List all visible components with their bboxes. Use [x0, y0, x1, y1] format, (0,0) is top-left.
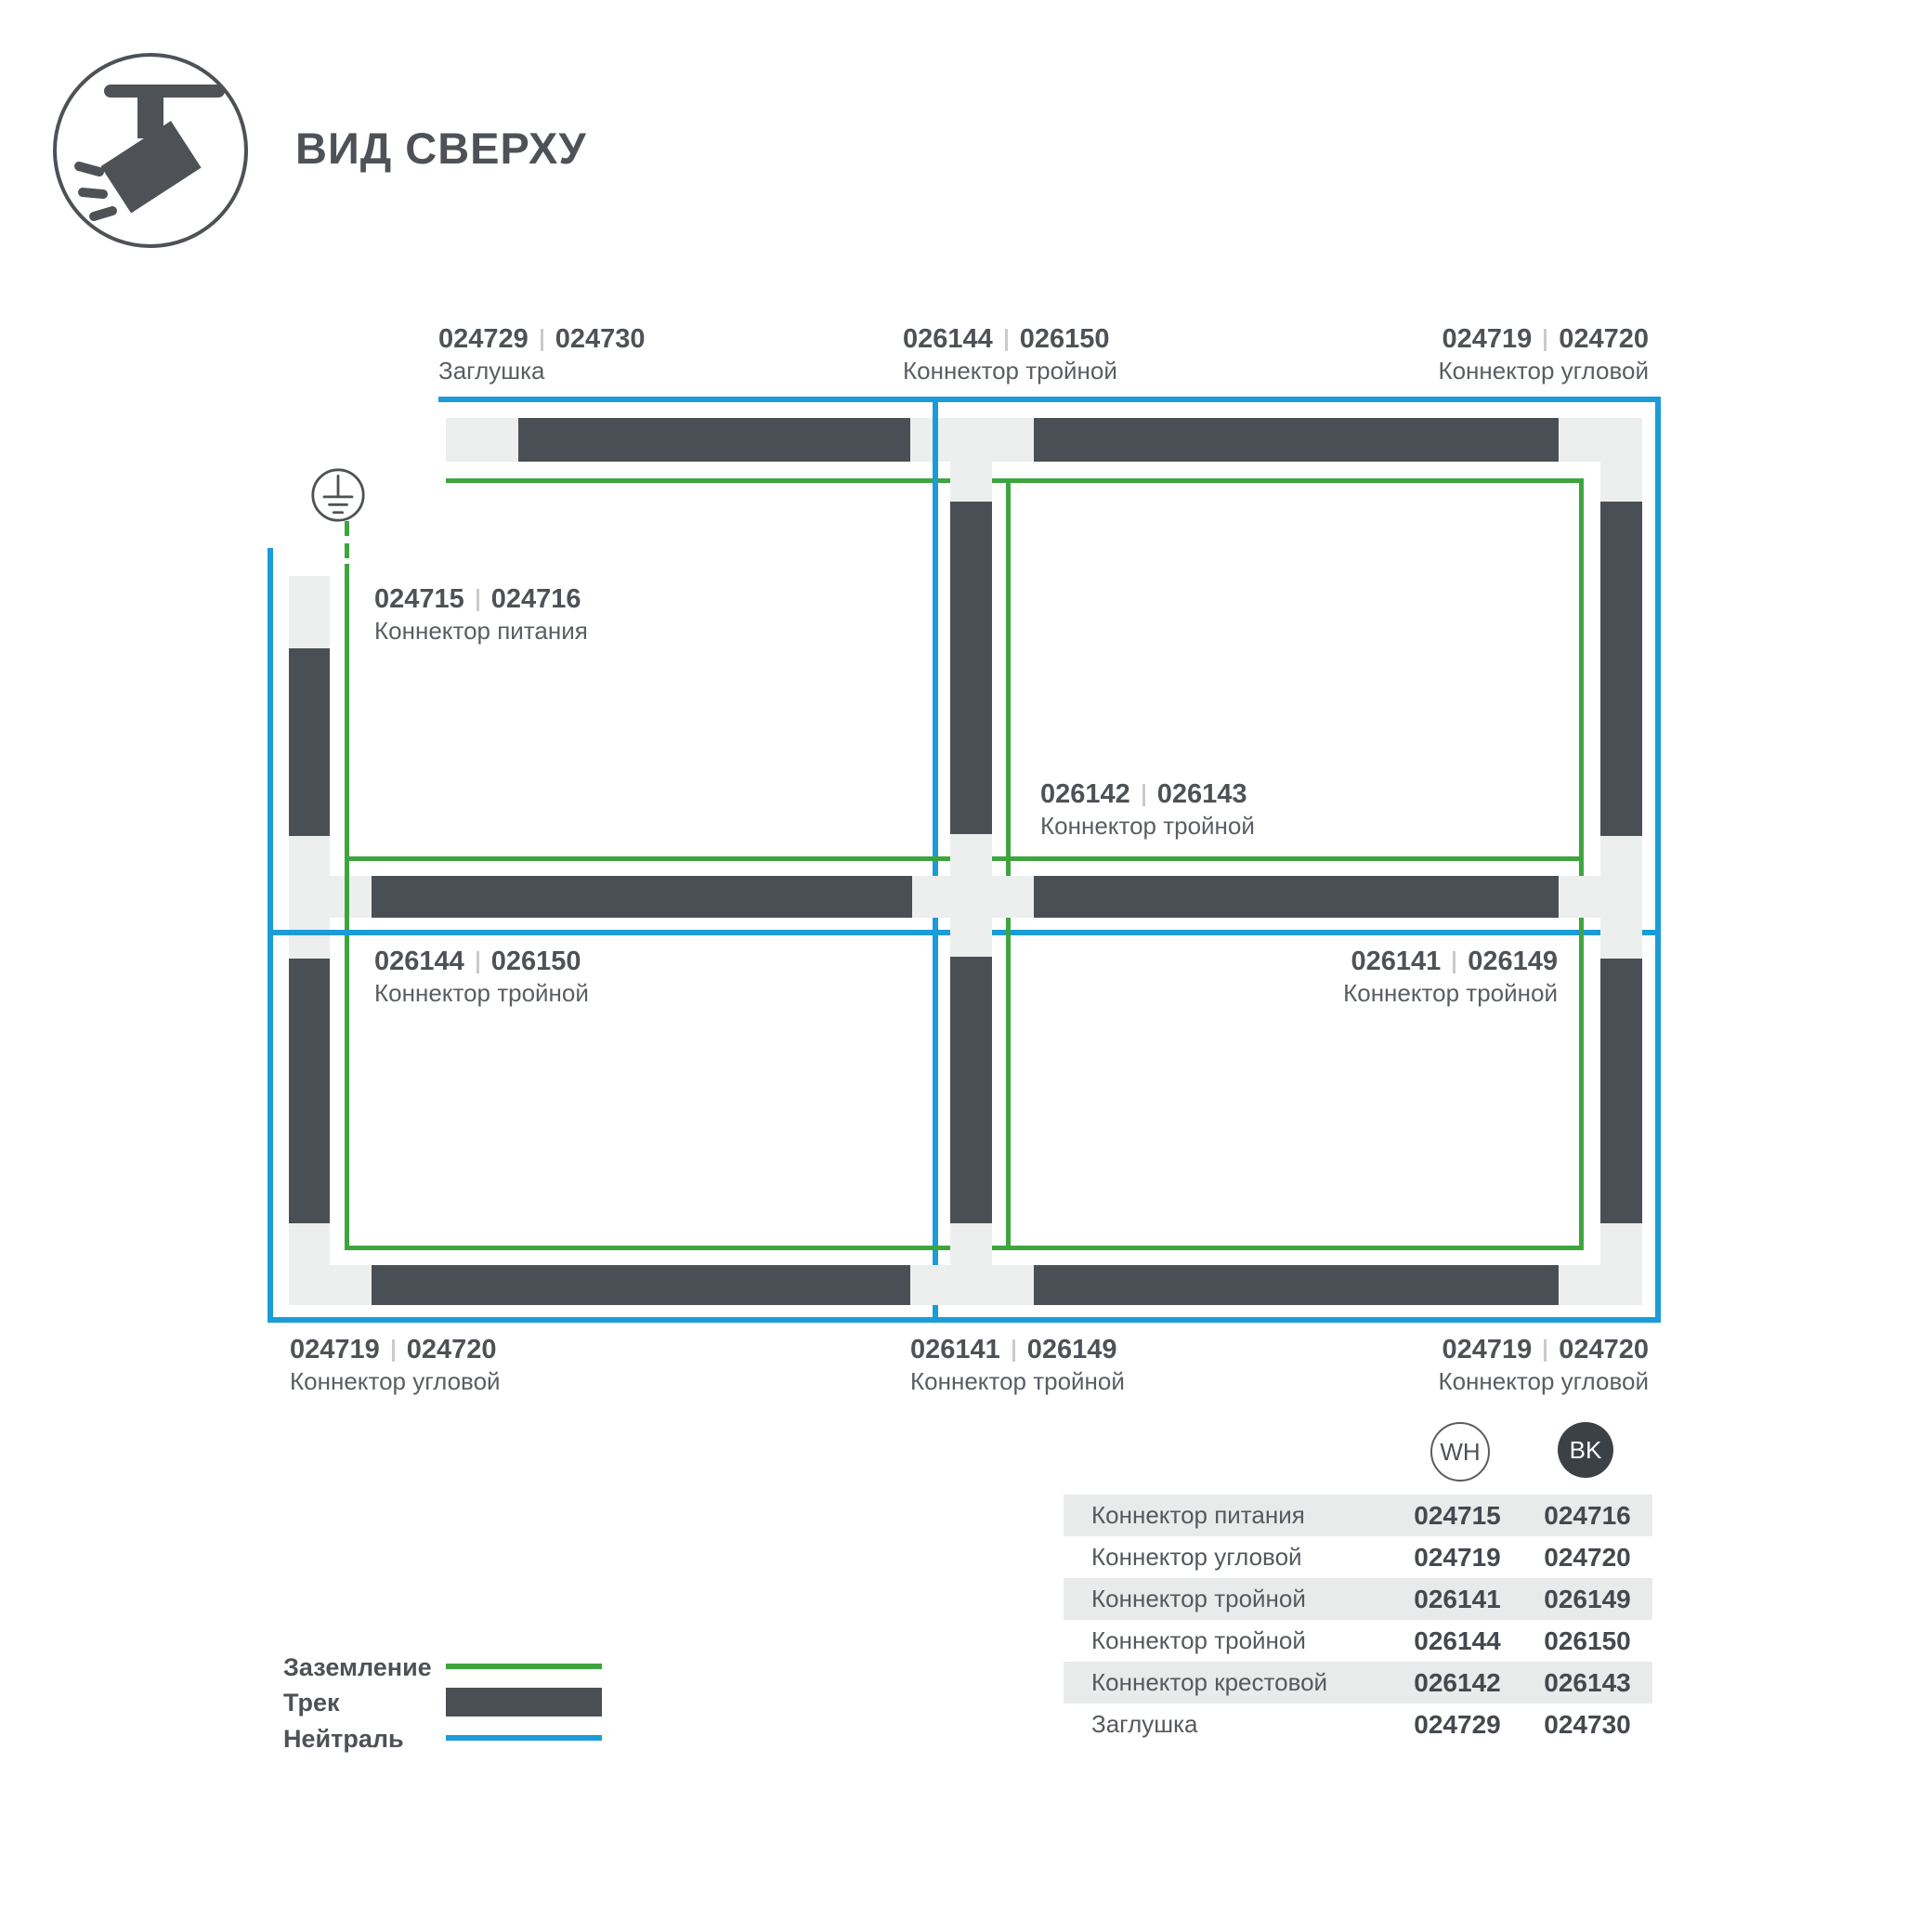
connector-block [289, 1223, 330, 1265]
track-segment [1034, 876, 1559, 918]
part-label: 026141026149Коннектор тройной [1343, 947, 1558, 1006]
part-code-white: 024719 [1442, 324, 1532, 354]
table-row: Коннектор питания024715024716 [1064, 1495, 1652, 1536]
part-label: 024729024730Заглушка [438, 325, 646, 384]
part-codes: 026142026143 [1040, 780, 1255, 808]
track-segment [1600, 502, 1642, 836]
part-name: Коннектор угловой [1438, 358, 1649, 384]
color-white-badge: WH [1430, 1422, 1490, 1482]
row-code-bk: 024720 [1522, 1543, 1652, 1573]
ground-line [446, 478, 1584, 483]
part-codes: 026141026149 [910, 1336, 1125, 1364]
connector-block [910, 418, 1034, 462]
code-separator [476, 589, 479, 611]
code-separator [1544, 1339, 1547, 1362]
row-part-name: Заглушка [1064, 1710, 1392, 1739]
part-label: 026141026149Коннектор тройной [910, 1336, 1125, 1394]
part-code-black: 024716 [491, 584, 581, 614]
part-code-white: 026141 [1351, 946, 1441, 976]
part-codes: 026144026150 [374, 947, 589, 975]
connector-block [446, 418, 518, 462]
part-label: 024719024720Коннектор угловой [1438, 325, 1649, 384]
row-code-bk: 026149 [1522, 1585, 1652, 1614]
track-bar-swatch [446, 1688, 602, 1717]
track-segment [1034, 1265, 1559, 1305]
row-code-wh: 024719 [1392, 1543, 1522, 1573]
part-label: 024715024716Коннектор питания [374, 585, 588, 644]
part-label: 024719024720Коннектор угловой [1438, 1336, 1649, 1394]
track-segment [372, 1265, 910, 1305]
connector-block [1559, 418, 1642, 462]
part-label: 026144026150Коннектор тройной [374, 947, 589, 1006]
part-name: Коннектор тройной [910, 1368, 1125, 1394]
part-code-white: 024729 [438, 324, 529, 354]
part-code-black: 026150 [491, 946, 581, 976]
part-codes: 024729024730 [438, 325, 646, 353]
part-code-black: 024720 [407, 1335, 497, 1364]
connector-block [1600, 462, 1642, 502]
code-separator [1544, 329, 1547, 351]
table-row: Коннектор тройной026144026150 [1064, 1620, 1652, 1662]
row-part-name: Коннектор тройной [1064, 1585, 1392, 1613]
part-name: Коннектор питания [374, 618, 588, 644]
row-code-bk: 026143 [1522, 1668, 1652, 1698]
track-segment [518, 418, 910, 462]
table-row: Коннектор крестовой026142026143 [1064, 1662, 1652, 1704]
connector-block [330, 876, 372, 918]
connector-block [289, 836, 330, 959]
part-code-black: 024720 [1559, 324, 1649, 354]
track-segment [372, 876, 912, 918]
connector-block [910, 1265, 1034, 1305]
track-segment [289, 648, 330, 836]
part-name: Коннектор тройной [903, 358, 1117, 384]
code-separator [476, 951, 479, 973]
connector-block [289, 1265, 372, 1305]
part-code-white: 024719 [290, 1335, 380, 1364]
part-codes: 024719024720 [290, 1336, 501, 1364]
row-code-bk: 024730 [1522, 1710, 1652, 1740]
neutral-line [268, 930, 377, 935]
part-code-white: 024719 [1442, 1335, 1532, 1364]
part-label: 026144026150Коннектор тройной [903, 325, 1117, 384]
row-part-name: Коннектор угловой [1064, 1543, 1392, 1572]
ground-line [345, 873, 349, 921]
part-codes: 024719024720 [1438, 325, 1649, 353]
part-name: Заглушка [438, 358, 646, 384]
color-black-badge: BK [1558, 1422, 1613, 1478]
part-code-black: 026150 [1020, 324, 1110, 354]
part-code-white: 026144 [903, 324, 993, 354]
connector-block [1559, 1265, 1642, 1305]
connector-block [912, 876, 1034, 918]
row-code-bk: 026150 [1522, 1626, 1652, 1656]
row-code-wh: 026144 [1392, 1626, 1522, 1656]
part-code-white: 024715 [374, 584, 464, 614]
neutral-line [1655, 397, 1661, 1323]
part-code-black: 024730 [555, 324, 646, 354]
ground-symbol-icon [310, 467, 366, 523]
track-segment [950, 957, 992, 1223]
track-segment [1600, 959, 1642, 1223]
track-segment [950, 502, 992, 834]
part-codes: 026144026150 [903, 325, 1117, 353]
legend-track-label: Трек [283, 1689, 340, 1717]
connector-block [289, 576, 330, 648]
part-label: 026142026143Коннектор тройной [1040, 780, 1255, 839]
code-separator [1012, 1339, 1015, 1362]
neutral-line [268, 548, 273, 1323]
row-part-name: Коннектор питания [1064, 1501, 1392, 1530]
part-code-black: 026143 [1157, 779, 1247, 809]
row-code-wh: 026141 [1392, 1585, 1522, 1614]
ground-line [1006, 478, 1011, 1250]
page-title: ВИД СВЕРХУ [295, 123, 587, 174]
row-code-wh: 026142 [1392, 1668, 1522, 1698]
track-segment [289, 959, 330, 1223]
track-segment [1034, 418, 1559, 462]
track-spotlight-icon [51, 51, 250, 250]
part-name: Коннектор угловой [290, 1368, 501, 1394]
row-part-name: Коннектор тройной [1064, 1626, 1392, 1655]
row-part-name: Коннектор крестовой [1064, 1668, 1392, 1697]
part-code-white: 026144 [374, 946, 464, 976]
ground-line [1579, 478, 1584, 1250]
part-code-black: 024720 [1559, 1335, 1649, 1364]
part-label: 024719024720Коннектор угловой [290, 1336, 501, 1394]
page: ВИД СВЕРХУ 024729024730Заглушка026144026… [0, 0, 1932, 1932]
neutral-line [268, 1317, 1661, 1323]
neutral-line [438, 397, 1661, 402]
code-separator [1005, 329, 1008, 351]
code-separator [1142, 784, 1145, 806]
connector-block [1559, 876, 1600, 918]
row-code-wh: 024715 [1392, 1501, 1522, 1531]
connector-block [1600, 1223, 1642, 1265]
code-separator [392, 1339, 395, 1362]
part-codes: 026141026149 [1343, 947, 1558, 975]
part-code-white: 026142 [1040, 779, 1130, 809]
connector-block [950, 462, 992, 502]
part-code-white: 026141 [910, 1335, 1000, 1364]
neutral-line-swatch [446, 1735, 602, 1741]
ground-line [345, 543, 349, 558]
legend-neutral-label: Нейтраль [283, 1725, 404, 1754]
neutral-line [933, 397, 938, 506]
ground-line [345, 521, 349, 536]
code-separator [541, 329, 543, 351]
part-name: Коннектор тройной [1040, 813, 1255, 839]
connector-block [1600, 836, 1642, 959]
part-name: Коннектор угловой [1438, 1368, 1649, 1394]
ground-line-swatch [446, 1664, 602, 1669]
part-codes: 024715024716 [374, 585, 588, 613]
part-codes: 024719024720 [1438, 1336, 1649, 1364]
table-row: Коннектор тройной026141026149 [1064, 1578, 1652, 1620]
part-code-black: 026149 [1468, 946, 1558, 976]
part-name: Коннектор тройной [1343, 980, 1558, 1006]
table-row: Заглушка024729024730 [1064, 1704, 1652, 1745]
code-separator [1453, 951, 1456, 973]
connector-block [950, 1223, 992, 1265]
row-code-wh: 024729 [1392, 1710, 1522, 1740]
part-name: Коннектор тройной [374, 980, 589, 1006]
legend-ground-label: Заземление [283, 1653, 432, 1682]
part-code-black: 026149 [1027, 1335, 1117, 1364]
row-code-bk: 024716 [1522, 1501, 1652, 1531]
table-row: Коннектор угловой024719024720 [1064, 1536, 1652, 1578]
